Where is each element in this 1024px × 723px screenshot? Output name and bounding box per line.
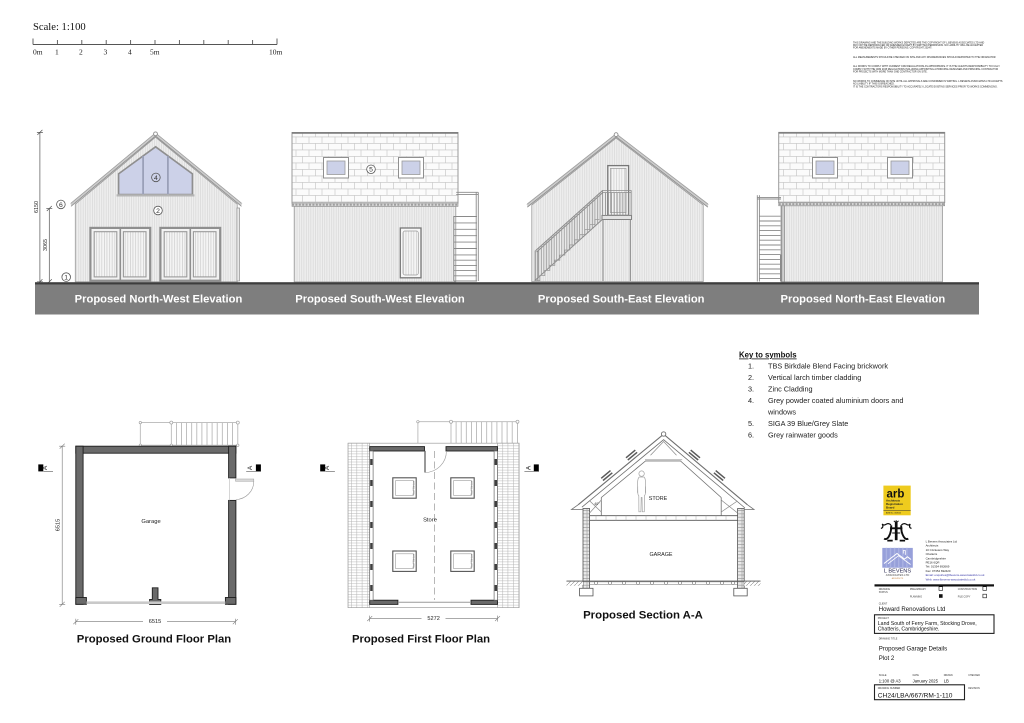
svg-text:6515: 6515 [149, 619, 161, 625]
svg-text:PROJECT: PROJECT [878, 617, 890, 620]
svg-text:5.: 5. [748, 419, 754, 428]
svg-text:ARB No. 063565: ARB No. 063565 [886, 512, 902, 515]
svg-text:Proposed North-West Elevation: Proposed North-West Elevation [75, 294, 243, 306]
svg-text:2: 2 [156, 208, 160, 215]
svg-text:5m: 5m [150, 48, 160, 57]
svg-text:2: 2 [79, 48, 83, 57]
svg-text:STORE: STORE [649, 496, 668, 502]
svg-text:STATUS: STATUS [879, 591, 888, 594]
svg-text:CHECKED: CHECKED [968, 674, 980, 677]
svg-text:Proposed Section A-A: Proposed Section A-A [583, 610, 703, 622]
svg-text:Grey powder coated aluminium d: Grey powder coated aluminium doors and [768, 396, 903, 405]
svg-text:10m: 10m [269, 48, 283, 57]
svg-text:40°: 40° [594, 502, 600, 506]
svg-text:DRAWING NUMBER: DRAWING NUMBER [878, 687, 901, 690]
svg-text:3.: 3. [748, 384, 754, 393]
svg-text:Proposed North-East Elevation: Proposed North-East Elevation [781, 294, 946, 306]
svg-text:Roof Window: Roof Window [471, 554, 474, 568]
svg-text:3065: 3065 [43, 239, 49, 251]
svg-text:0m: 0m [33, 48, 43, 57]
svg-text:Key to symbols: Key to symbols [739, 351, 797, 360]
svg-text:5: 5 [369, 167, 373, 174]
svg-text:Roof Window: Roof Window [413, 554, 416, 568]
svg-text:PLANNING: PLANNING [910, 596, 922, 599]
svg-text:Garage: Garage [141, 519, 160, 525]
svg-text:Proposed South-West Elevation: Proposed South-West Elevation [295, 294, 465, 306]
svg-text:FILE COPY: FILE COPY [958, 596, 971, 599]
svg-text:A: A [324, 465, 331, 470]
svg-text:ARCHITECTS: ARCHITECTS [892, 577, 904, 580]
svg-text:REVISION: REVISION [968, 687, 980, 690]
svg-text:Roof Window: Roof Window [413, 481, 416, 495]
svg-text:6150: 6150 [34, 201, 40, 213]
svg-text:GARAGE: GARAGE [649, 552, 672, 558]
svg-text:Grey rainwater goods: Grey rainwater goods [768, 430, 838, 439]
svg-text:Web: www.lbevens-associatesltd: Web: www.lbevens-associatesltd.co.uk [926, 577, 976, 581]
svg-text:1: 1 [64, 275, 68, 282]
svg-text:windows: windows [767, 407, 796, 416]
svg-text:ALL MEASUREMENTS SHOULD BE CHE: ALL MEASUREMENTS SHOULD BE CHECKED ON SI… [853, 56, 996, 59]
svg-text:4: 4 [128, 48, 132, 57]
svg-text:Zinc Cladding: Zinc Cladding [768, 384, 813, 393]
svg-text:6: 6 [59, 202, 63, 209]
svg-text:TBS Birkdale Blend Facing bric: TBS Birkdale Blend Facing brickwork [768, 361, 888, 370]
svg-text:FOR PROJECTS WITH MORE THAN ON: FOR PROJECTS WITH MORE THAN ONE CONTRACT… [853, 70, 928, 73]
svg-text:Board: Board [886, 505, 895, 509]
svg-text:Proposed First Floor Plan: Proposed First Floor Plan [352, 634, 490, 646]
svg-text:IT IS THE CONTRACTORS RESPONSI: IT IS THE CONTRACTORS RESPONSIBILITY TO … [853, 85, 998, 88]
svg-text:6.: 6. [748, 430, 754, 439]
svg-text:CH24/LBA/667/RM-1-110: CH24/LBA/667/RM-1-110 [878, 693, 953, 700]
svg-text:4.: 4. [748, 396, 754, 405]
svg-text:DATE: DATE [913, 674, 920, 677]
svg-text:Howard Renovations Ltd: Howard Renovations Ltd [879, 606, 946, 613]
svg-text:DRAWN: DRAWN [944, 674, 953, 677]
svg-text:DRAWING TITLE: DRAWING TITLE [879, 638, 898, 641]
svg-text:A: A [247, 465, 254, 470]
svg-text:Scale: 1:100: Scale: 1:100 [33, 22, 86, 33]
svg-text:4: 4 [154, 175, 158, 182]
svg-text:SCALE: SCALE [879, 674, 887, 677]
svg-text:5272: 5272 [427, 616, 439, 622]
svg-text:Vertical larch timber cladding: Vertical larch timber cladding [768, 373, 861, 382]
svg-text:1.: 1. [748, 361, 754, 370]
svg-text:3: 3 [104, 48, 108, 57]
svg-text:FOR AMENDMENTS MADE BY OTHER P: FOR AMENDMENTS MADE BY OTHER PERSONS. CO… [853, 47, 933, 50]
svg-text:CONSTRUCTION: CONSTRUCTION [958, 588, 978, 591]
svg-text:PRELIMINARY: PRELIMINARY [910, 588, 927, 591]
svg-text:Proposed Garage Details: Proposed Garage Details [879, 646, 947, 653]
svg-text:Chatteris, Cambridgeshire.: Chatteris, Cambridgeshire. [878, 627, 940, 633]
svg-text:Store: Store [423, 518, 437, 524]
svg-text:A: A [42, 465, 49, 470]
svg-text:A: A [525, 465, 532, 470]
svg-text:CLIENT: CLIENT [879, 602, 888, 605]
svg-text:1:100 @ A3: 1:100 @ A3 [879, 678, 902, 683]
svg-text:2.: 2. [748, 373, 754, 382]
svg-text:6515: 6515 [56, 519, 62, 531]
svg-text:ASSOCIATES LTD: ASSOCIATES LTD [886, 573, 910, 577]
svg-text:Proposed South-East Elevation: Proposed South-East Elevation [538, 294, 705, 306]
svg-text:LB: LB [944, 678, 949, 683]
svg-text:Roof Window: Roof Window [471, 481, 474, 495]
svg-text:Proposed Ground Floor Plan: Proposed Ground Floor Plan [77, 634, 231, 646]
svg-text:January 2025: January 2025 [913, 678, 939, 683]
svg-text:1: 1 [55, 48, 59, 57]
svg-text:SIGA 39 Blue/Grey Slate: SIGA 39 Blue/Grey Slate [768, 419, 848, 428]
svg-text:Plot 2: Plot 2 [879, 655, 895, 662]
